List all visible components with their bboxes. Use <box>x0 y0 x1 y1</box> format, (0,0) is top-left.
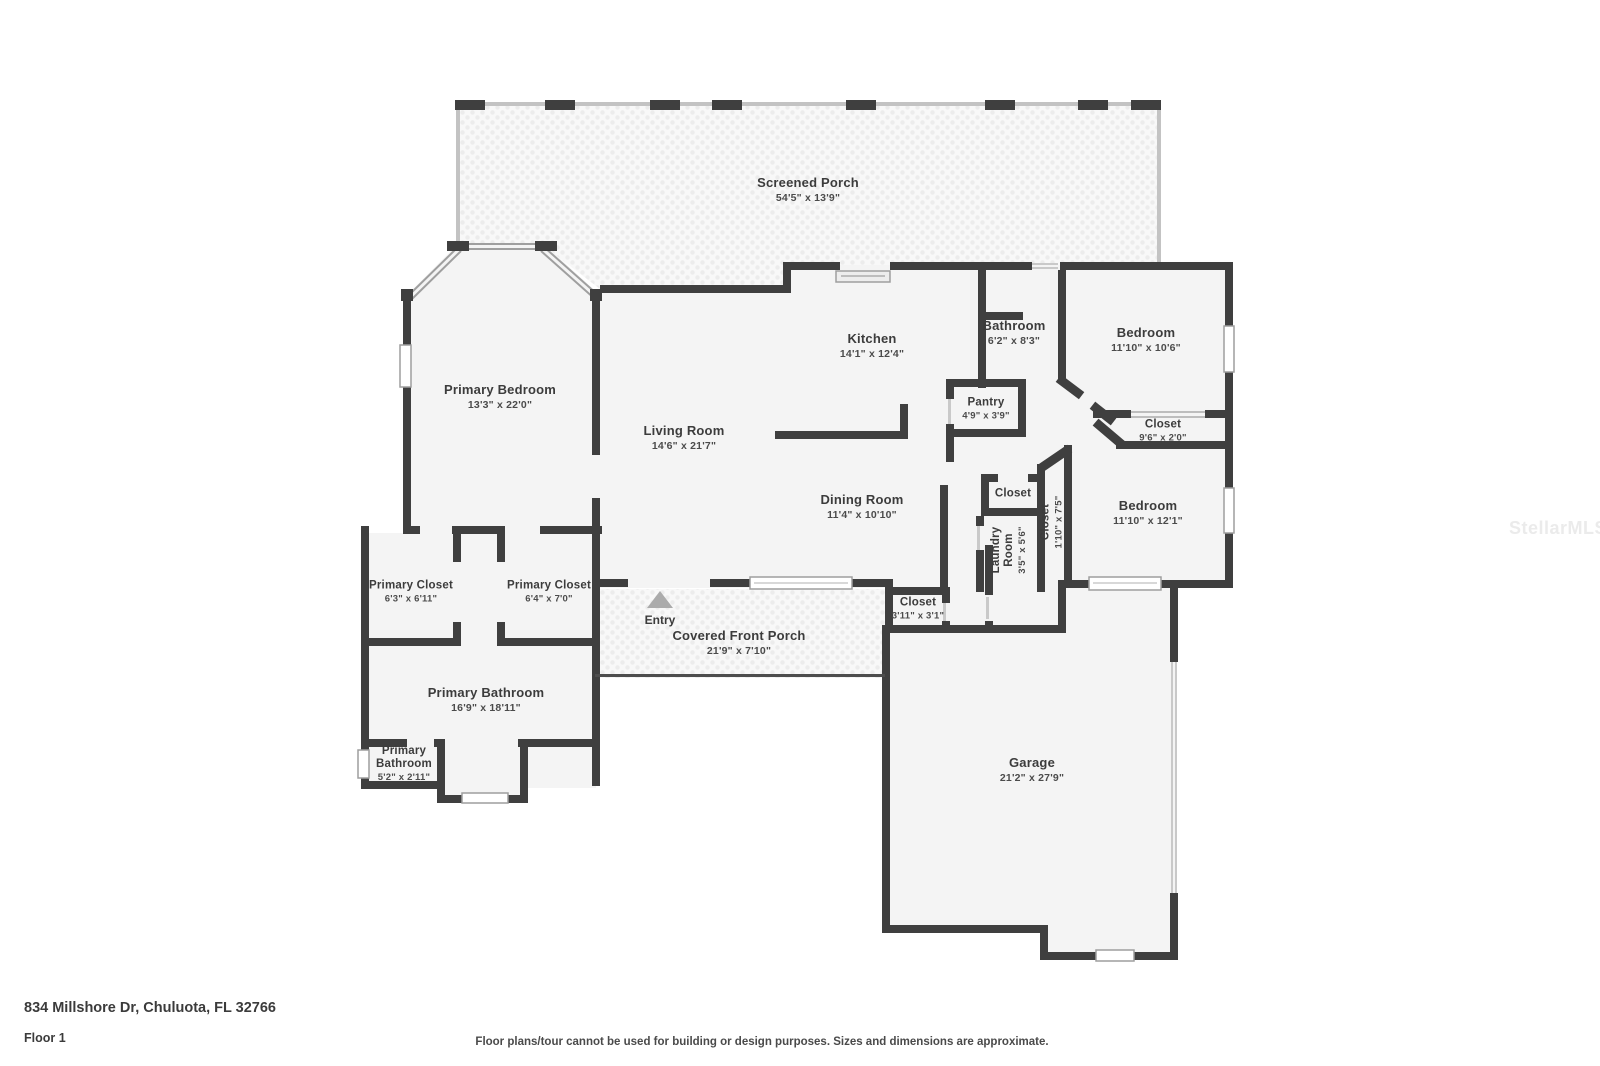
room-label-dining-room: Dining Room 11'4" x 10'10" <box>820 493 903 521</box>
room-label-pantry: Pantry 4'9" x 3'9" <box>962 396 1009 421</box>
room-label-covered-front-porch: Covered Front Porch 21'9" x 7'10" <box>672 629 805 657</box>
room-label-primary-closet-right: Primary Closet 6'4" x 7'0" <box>507 579 591 604</box>
room-label-garage: Garage 21'2" x 27'9" <box>1000 756 1064 784</box>
room-label-kitchen: Kitchen 14'1" x 12'4" <box>840 332 904 360</box>
floor-number-label: Floor 1 <box>24 1031 66 1045</box>
room-label-closet-entry: Closet 3'11" x 3'1" <box>892 596 944 621</box>
disclaimer-text: Floor plans/tour cannot be used for buil… <box>475 1036 1048 1048</box>
room-label-primary-bathroom-small: Primary Bathroom 5'2" x 2'11" <box>365 745 443 783</box>
room-label-closet-wide: Closet 9'6" x 2'0" <box>1139 418 1186 443</box>
stellar-mls-watermark: StellarMLS <box>1509 518 1600 539</box>
room-label-closet-tall: Closet 1'10" x 7'5" <box>1039 496 1064 549</box>
room-label-living-room: Living Room 14'6" x 21'7" <box>644 424 725 452</box>
entry-label: Entry <box>645 613 676 627</box>
room-label-bathroom: Bathroom 6'2" x 8'3" <box>983 319 1046 347</box>
room-label-screened-porch: Screened Porch 54'5" x 13'9" <box>757 176 859 204</box>
room-label-bedroom-bottom: Bedroom 11'10" x 12'1" <box>1113 499 1183 527</box>
room-label-primary-bathroom: Primary Bathroom 16'9" x 18'11" <box>428 686 545 714</box>
property-address: 834 Millshore Dr, Chuluota, FL 32766 <box>24 1000 276 1016</box>
floor-plan-drawing <box>0 0 1600 1066</box>
room-label-primary-bedroom: Primary Bedroom 13'3" x 22'0" <box>444 383 556 411</box>
front-porch-edge <box>595 674 885 677</box>
room-label-laundry: Laundry Room 3'5" x 5'6" <box>990 519 1028 581</box>
floor-plan-page: Screened Porch 54'5" x 13'9" Primary Bed… <box>0 0 1600 1066</box>
room-label-bedroom-top: Bedroom 11'10" x 10'6" <box>1111 326 1181 354</box>
room-label-closet-small: Closet <box>995 487 1031 500</box>
room-label-primary-closet-left: Primary Closet 6'3" x 6'11" <box>369 579 453 604</box>
